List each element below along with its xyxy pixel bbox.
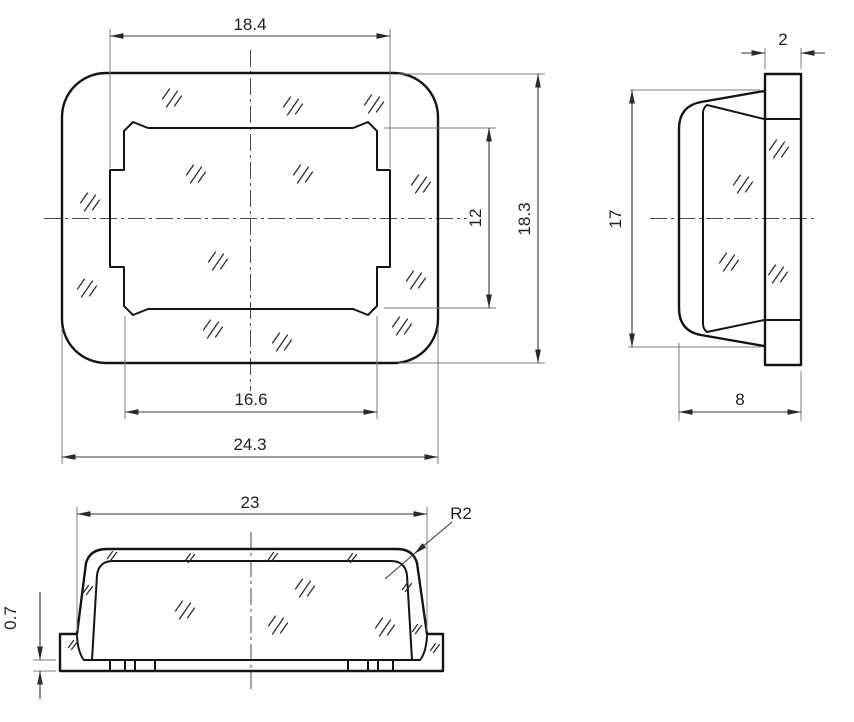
side-rim-contour bbox=[765, 74, 801, 365]
bottom-inner-contour bbox=[92, 561, 412, 660]
drawing-canvas: 18.4 16.6 24.3 12 18.3 2 bbox=[0, 0, 854, 722]
dim-side-rim-thickness: 2 bbox=[741, 30, 825, 69]
bottom-right-foot-curve bbox=[420, 636, 427, 660]
dim-front-outer-width-label: 24.3 bbox=[233, 435, 266, 454]
dim-bottom-corner-radius-label: R2 bbox=[450, 504, 472, 523]
dimensions: 18.4 16.6 24.3 12 18.3 2 bbox=[1, 15, 825, 699]
dim-front-inner-width-label: 16.6 bbox=[234, 390, 267, 409]
dim-bottom-width-label: 23 bbox=[241, 493, 260, 512]
dim-front-inner-height-label: 12 bbox=[466, 209, 485, 228]
dim-side-rim-thickness-label: 2 bbox=[778, 30, 787, 49]
dim-side-height-label: 17 bbox=[606, 210, 625, 229]
dim-bottom-base-thickness-label: 0.7 bbox=[1, 606, 20, 630]
bottom-hatch-marks bbox=[69, 552, 440, 653]
dim-front-outer-height-label: 18.3 bbox=[515, 202, 534, 235]
side-hatch-marks bbox=[720, 140, 789, 283]
side-view bbox=[650, 74, 818, 365]
bottom-left-foot-curve bbox=[77, 636, 84, 660]
dim-bottom-corner-radius: R2 bbox=[385, 504, 472, 579]
dim-side-depth-label: 8 bbox=[735, 390, 744, 409]
dim-bottom-base-thickness: 0.7 bbox=[1, 592, 56, 699]
technical-drawing: 18.4 16.6 24.3 12 18.3 2 bbox=[0, 0, 854, 722]
front-view bbox=[44, 50, 467, 391]
bottom-view bbox=[60, 532, 443, 692]
dim-side-depth: 8 bbox=[679, 343, 801, 421]
dim-front-top-width-label: 18.4 bbox=[233, 15, 266, 34]
